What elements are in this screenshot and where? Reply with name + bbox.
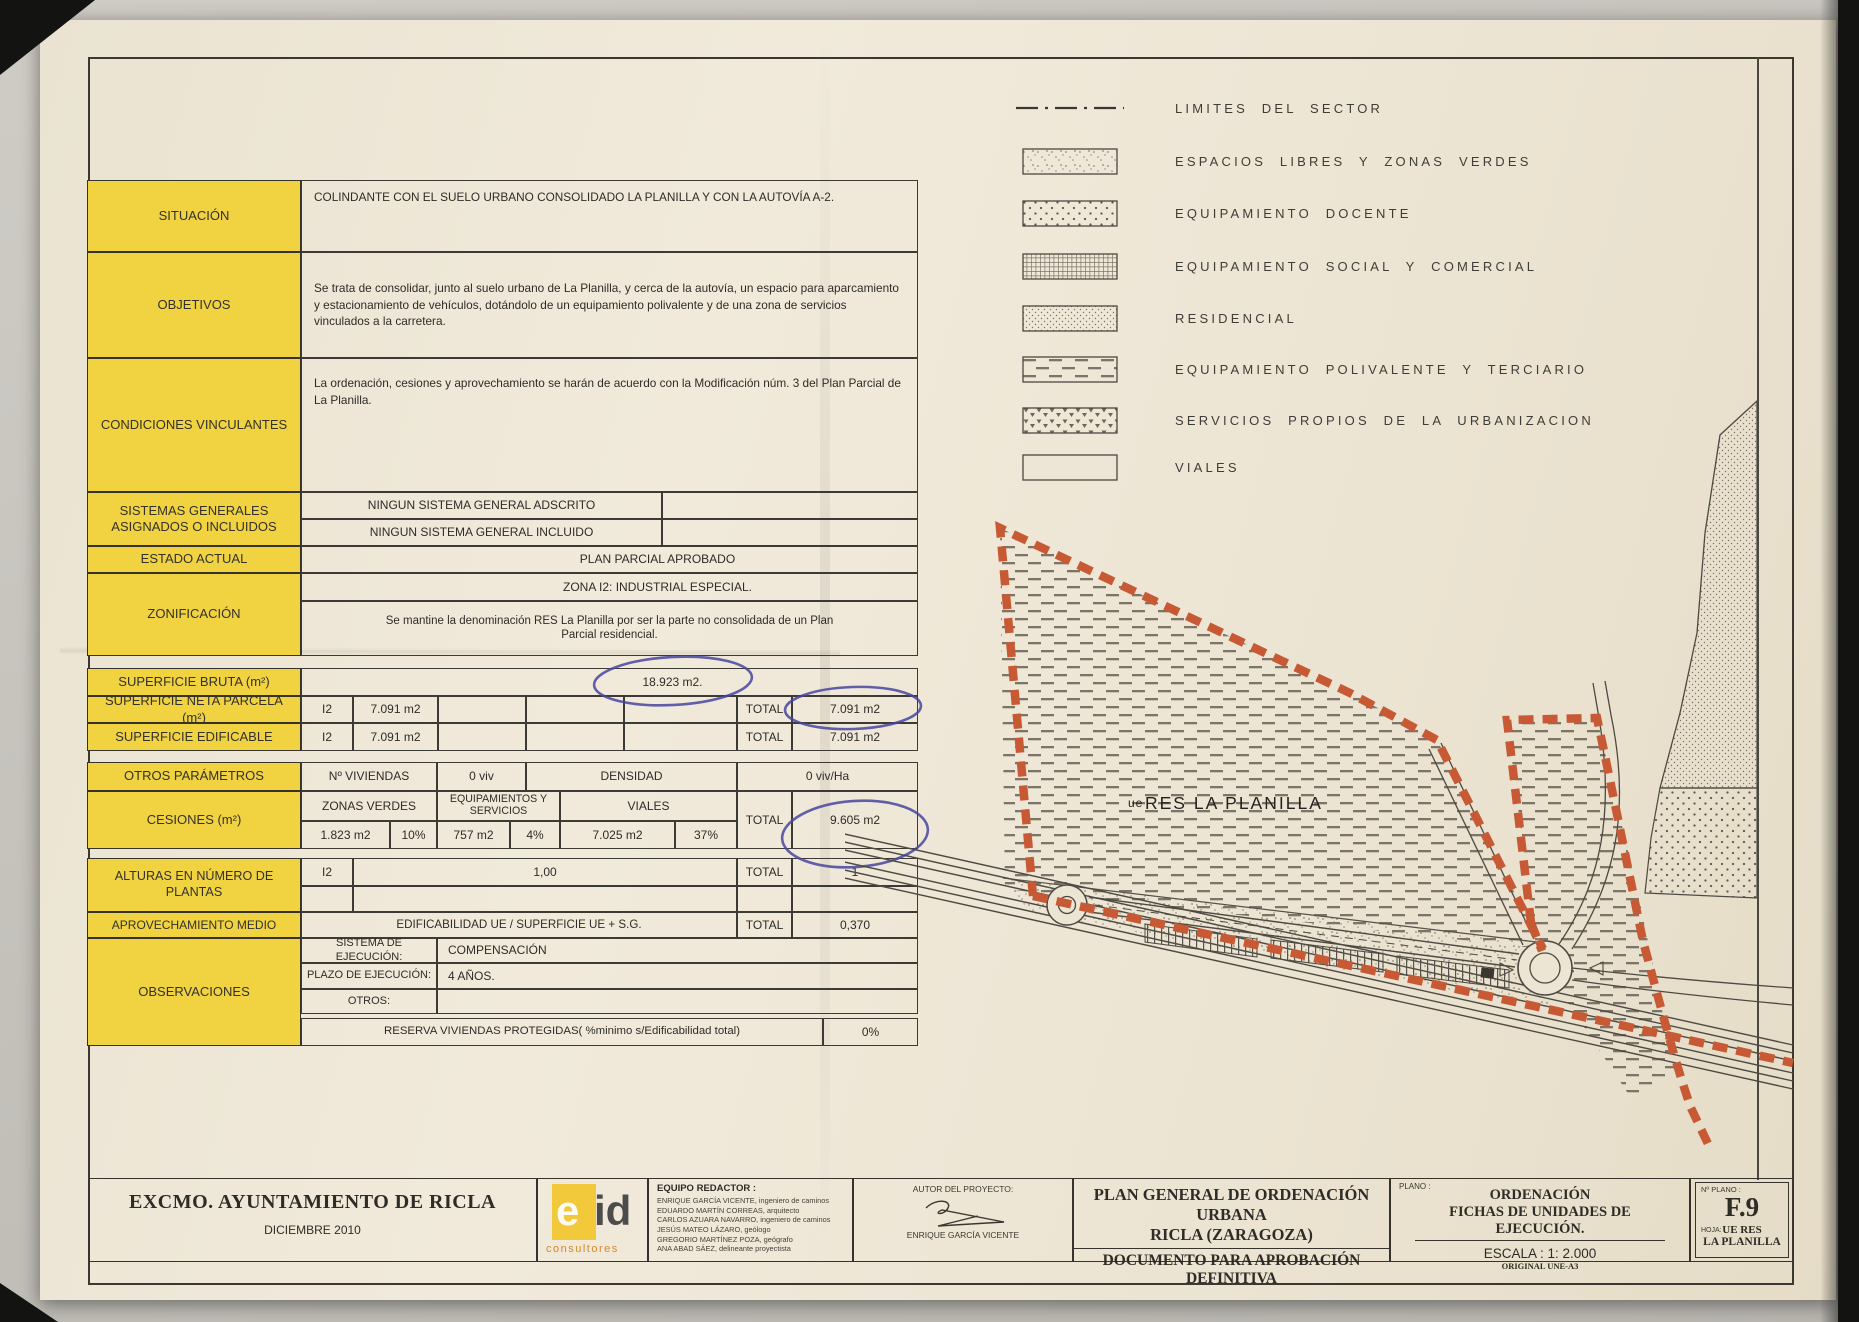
footer-logo-box: e id consultores xyxy=(537,1178,648,1262)
row-label-zonificacion: ZONIFICACIÓN xyxy=(87,573,301,656)
footer-sheet-number-box: Nº PLANO : F.9 HOJA: UE RES LA PLANILLA xyxy=(1690,1178,1794,1262)
footer-team-box: EQUIPO REDACTOR : ENRIQUE GARCÍA VICENTE… xyxy=(648,1178,853,1262)
plano-original: ORIGINAL UNE-A3 xyxy=(1391,1261,1689,1271)
client-name: EXCMO. AYUNTAMIENTO DE RICLA xyxy=(89,1191,536,1214)
cell-cesiones-total-label: TOTAL xyxy=(737,791,792,849)
eid-logo-e: e xyxy=(556,1187,579,1235)
hoja-label: HOJA: xyxy=(1701,1227,1722,1234)
row-label-observaciones: OBSERVACIONES xyxy=(87,938,301,1046)
author-name: ENRIQUE GARCÍA VICENTE xyxy=(854,1230,1072,1240)
cell-sistema-ejecucion-label: SISTEMA DE EJECUCIÓN: xyxy=(301,938,437,963)
legend-label-residencial: RESIDENCIAL xyxy=(1175,311,1297,326)
legend-label-social: EQUIPAMIENTO SOCIAL Y COMERCIAL xyxy=(1175,259,1537,274)
legend-swatch-polivalente xyxy=(1022,356,1118,383)
legend-swatch-espacios xyxy=(1022,148,1118,175)
cell-edif-total-label: TOTAL xyxy=(737,723,792,751)
row-label-otros-parametros: OTROS PARÁMETROS xyxy=(87,762,301,791)
footer-plano-box: PLANO : ORDENACIÓN FICHAS DE UNIDADES DE… xyxy=(1390,1178,1690,1262)
team-title: EQUIPO REDACTOR : xyxy=(657,1183,852,1194)
cell-cesiones-p1: 10% xyxy=(390,821,437,849)
footer-client-box: EXCMO. AYUNTAMIENTO DE RICLA DICIEMBRE 2… xyxy=(88,1178,537,1262)
cell-cesiones-v2: 757 m2 xyxy=(437,821,510,849)
cell-plazo-label: PLAZO DE EJECUCIÓN: xyxy=(301,963,437,989)
urban-plan-map: ue RES LA PLANILLA xyxy=(845,383,1795,1178)
map-sector-a-fill xyxy=(1000,528,1543,949)
cell-edif-zone: I2 xyxy=(301,723,353,751)
cell-otros-label: OTROS: xyxy=(301,989,437,1014)
empty-cell xyxy=(438,723,526,751)
row-label-cesiones: CESIONES (m²) xyxy=(87,791,301,849)
cell-sistemas-row1: NINGUN SISTEMA GENERAL ADSCRITO xyxy=(301,492,662,519)
team-member: CARLOS AZUARA NAVARRO, ingeniero de cami… xyxy=(657,1215,852,1225)
plano-escala: ESCALA : 1: 2.000 xyxy=(1391,1246,1689,1261)
client-date: DICIEMBRE 2010 xyxy=(89,1223,536,1237)
cell-cesiones-h3: VIALES xyxy=(560,791,737,821)
legend-swatch-social xyxy=(1022,253,1118,280)
empty-cell xyxy=(526,723,624,751)
legend-label-limites: LIMITES DEL SECTOR xyxy=(1175,101,1383,116)
row-label-alturas: ALTURAS EN NÚMERO DE PLANTAS xyxy=(87,858,301,912)
photo-edge-shadow xyxy=(1838,0,1859,1322)
empty-cell xyxy=(624,696,737,723)
row-label-condiciones: CONDICIONES VINCULANTES xyxy=(87,358,301,492)
eid-logo-id: id xyxy=(594,1187,631,1235)
cell-cesiones-p3: 37% xyxy=(675,821,737,849)
map-zone-docente xyxy=(1645,788,1757,898)
empty-cell xyxy=(737,886,792,912)
cell-neta-total-label: TOTAL xyxy=(737,696,792,723)
cell-otros-col3: DENSIDAD xyxy=(526,762,737,791)
cell-zonificacion-line1: ZONA I2: INDUSTRIAL ESPECIAL. xyxy=(301,573,918,601)
cell-estado-text: PLAN PARCIAL APROBADO xyxy=(301,546,918,573)
project-title-line1: PLAN GENERAL DE ORDENACIÓN URBANA xyxy=(1074,1185,1389,1225)
row-label-sistemas: SISTEMAS GENERALES ASIGNADOS O INCLUIDOS xyxy=(87,492,301,546)
plano-line1: ORDENACIÓN xyxy=(1391,1187,1689,1204)
row-label-superficie-neta: SUPERFICIE NETA PARCELA (m²) xyxy=(87,696,301,723)
photo-of-plan-sheet: SITUACIÓN COLINDANTE CON EL SUELO URBANO… xyxy=(0,0,1859,1322)
plano-label: PLANO : xyxy=(1399,1182,1431,1191)
cell-neta-zone: I2 xyxy=(301,696,353,723)
sector-label-prefix: ue xyxy=(1128,796,1143,810)
plano-line2: FICHAS DE UNIDADES DE EJECUCIÓN. xyxy=(1415,1204,1665,1241)
cell-cesiones-v3: 7.025 m2 xyxy=(560,821,675,849)
cell-situacion-text: COLINDANTE CON EL SUELO URBANO CONSOLIDA… xyxy=(301,180,918,252)
legend-label-polivalente: EQUIPAMIENTO POLIVALENTE Y TERCIARIO xyxy=(1175,362,1587,377)
sector-label: RES LA PLANILLA xyxy=(1145,793,1323,813)
num-plano-label: Nº PLANO : xyxy=(1701,1185,1741,1194)
cell-reserva-label: RESERVA VIVIENDAS PROTEGIDAS( %minimo s/… xyxy=(301,1018,823,1046)
row-label-superficie-edificable: SUPERFICIE EDIFICABLE xyxy=(87,723,301,751)
cell-otros-col1: Nº VIVIENDAS xyxy=(301,762,437,791)
cell-alturas-total-label: TOTAL xyxy=(737,858,792,886)
legend-swatch-limites xyxy=(1012,98,1128,118)
empty-cell xyxy=(438,696,526,723)
cell-otros-col2: 0 viv xyxy=(437,762,526,791)
footer-author-box: AUTOR DEL PROYECTO: ENRIQUE GARCÍA VICEN… xyxy=(853,1178,1073,1262)
cell-alturas-value: 1,00 xyxy=(353,858,737,886)
legend-swatch-residencial xyxy=(1022,305,1118,332)
team-member: GREGORIO MARTÍNEZ POZA, geógrafo xyxy=(657,1235,852,1245)
legend-label-docente: EQUIPAMIENTO DOCENTE xyxy=(1175,206,1412,221)
empty-cell xyxy=(624,723,737,751)
team-member: EDUARDO MARTÍN CORREAS, arquitecto xyxy=(657,1206,852,1216)
cell-neta-zone-value: 7.091 m2 xyxy=(353,696,438,723)
signature-icon xyxy=(908,1196,1018,1230)
legend-label-espacios: ESPACIOS LIBRES Y ZONAS VERDES xyxy=(1175,154,1532,169)
cell-superficie-bruta-value: 18.923 m2. xyxy=(301,668,918,696)
eid-logo-sub: consultores xyxy=(546,1243,619,1255)
row-label-objetivos: OBJETIVOS xyxy=(87,252,301,358)
row-label-aprovechamiento: APROVECHAMIENTO MEDIO xyxy=(87,912,301,938)
team-member: JESÚS MATEO LÁZARO, geólogo xyxy=(657,1225,852,1235)
team-member: ANA ABAD SÁEZ, delineante proyectista xyxy=(657,1244,852,1254)
project-title-line2: RICLA (ZARAGOZA) xyxy=(1074,1225,1389,1245)
cell-edif-zone-value: 7.091 m2 xyxy=(353,723,438,751)
empty-cell xyxy=(526,696,624,723)
cell-aprovechamiento-formula: EDIFICABILIDAD UE / SUPERFICIE UE + S.G. xyxy=(301,912,737,938)
cell-sistemas-row2: NINGUN SISTEMA GENERAL INCLUIDO xyxy=(301,519,662,546)
project-title-line3: DOCUMENTO PARA APROBACIÓN DEFINITIVA xyxy=(1074,1248,1389,1288)
row-label-estado: ESTADO ACTUAL xyxy=(87,546,301,573)
cell-objetivos-text: Se trata de consolidar, junto al suelo u… xyxy=(301,252,918,358)
footer-project-title-box: PLAN GENERAL DE ORDENACIÓN URBANA RICLA … xyxy=(1073,1178,1390,1262)
team-member: ENRIQUE GARCÍA VICENTE, ingeniero de cam… xyxy=(657,1196,852,1206)
empty-cell xyxy=(301,886,353,912)
cell-cesiones-p2: 4% xyxy=(510,821,560,849)
cell-alturas-zone: I2 xyxy=(301,858,353,886)
cell-cesiones-v1: 1.823 m2 xyxy=(301,821,390,849)
map-small-building xyxy=(1481,967,1495,978)
empty-cell xyxy=(353,886,737,912)
map-zone-residencial xyxy=(1660,401,1757,788)
photo-edge-shadow xyxy=(1820,0,1840,1322)
cell-cesiones-h2: EQUIPAMIENTOS Y SERVICIOS xyxy=(437,791,560,821)
cell-condiciones-text: La ordenación, cesiones y aprovechamient… xyxy=(301,358,918,492)
row-label-superficie-bruta: SUPERFICIE BRUTA (m²) xyxy=(87,668,301,696)
cell-cesiones-h1: ZONAS VERDES xyxy=(301,791,437,821)
cell-zonificacion-line2: Se mantine la denominación RES La Planil… xyxy=(301,601,918,656)
row-label-situacion: SITUACIÓN xyxy=(87,180,301,252)
cell-aprovechamiento-total-label: TOTAL xyxy=(737,912,792,938)
author-title: AUTOR DEL PROYECTO: xyxy=(854,1184,1072,1194)
legend-swatch-docente xyxy=(1022,200,1118,227)
